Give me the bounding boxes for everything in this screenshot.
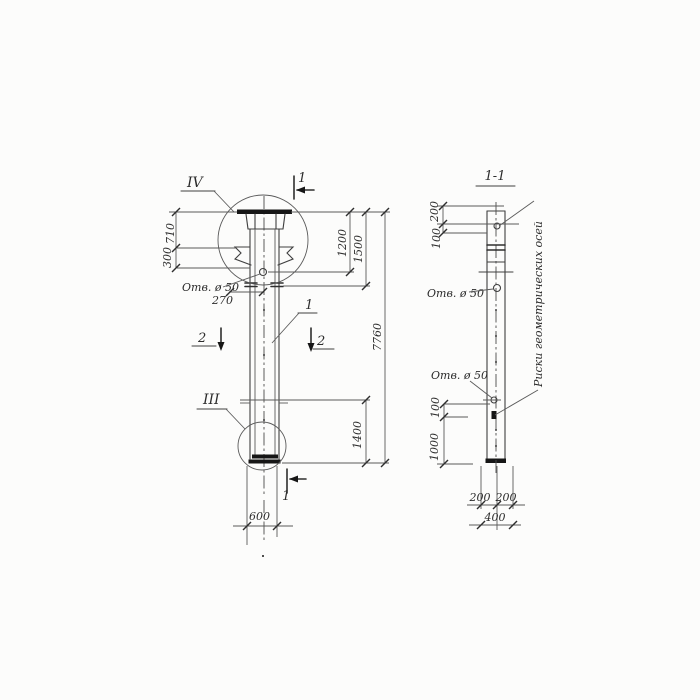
section-1-bottom-label: 1 [282,489,290,504]
dim-710: 710 [164,223,177,244]
dim-7760: 7760 [371,323,384,351]
dims-left: 710 300 [161,208,250,272]
dim-400: 400 [484,511,506,524]
marker-IV-label: IV [186,175,205,191]
main-centerline [262,196,265,557]
hole-50-section-label-bottom: Отв. ø 50 [431,369,488,382]
dim-200-left: 200 [469,491,491,504]
dim-1200: 1200 [336,229,349,257]
section-1-top-label: 1 [298,171,306,186]
hole-50-main [260,269,267,276]
part-1-label: 1 [305,298,313,313]
dim-1500: 1500 [352,235,365,263]
section-marker-2-right: 2 [308,328,335,352]
dim-200-right: 200 [495,491,517,504]
dim-100-top: 100 [430,228,443,249]
section-dims-lower-left: 100 1000 [428,397,490,468]
axis-note: Риски геометрических осей [495,201,545,415]
hole-label-main: Отв. ø 50 [182,274,260,294]
pile-shaft [249,229,281,464]
dim-270: 270 [211,294,233,307]
hole-label-section-top: Отв. ø 50 [427,287,493,300]
pile-column-drawing: IV III 1 1 2 [0,0,700,700]
section-marker-1-top: 1 [294,171,314,199]
section-2-right-label: 2 [316,334,325,349]
detail-circle-IV [218,195,308,285]
section-2-left-label: 2 [197,331,206,346]
hole-label-section-bottom: Отв. ø 50 [431,369,492,398]
section-dims-bottom: 200 200 400 [467,466,525,530]
section-title: 1-1 [476,169,515,186]
section-view: 1-1 [427,169,545,530]
section-column [479,202,513,476]
axis-note-label: Риски геометрических осей [532,221,545,388]
dim-600-group: 600 [233,466,293,545]
dim-1400: 1400 [351,421,364,449]
drawing-sheet: IV III 1 1 2 [0,0,700,700]
detail-marker-III: III [197,392,245,429]
dim-200-top: 200 [428,201,441,223]
main-view: IV III 1 1 2 [161,171,390,557]
detail-marker-IV: IV [181,175,234,212]
section-marker-2-left: 2 [192,328,225,351]
dim-600: 600 [249,510,270,523]
pile-cap [237,210,292,230]
section-marker-1-bottom: 1 [282,469,306,504]
dim-300: 300 [161,247,174,268]
dim-100-bottom: 100 [429,397,442,418]
hole-50-section-label-top: Отв. ø 50 [427,287,484,300]
marker-III-label: III [202,392,220,408]
dim-1000: 1000 [428,433,441,461]
hole-50-section-mid [494,285,501,292]
section-title-label: 1-1 [485,169,506,184]
